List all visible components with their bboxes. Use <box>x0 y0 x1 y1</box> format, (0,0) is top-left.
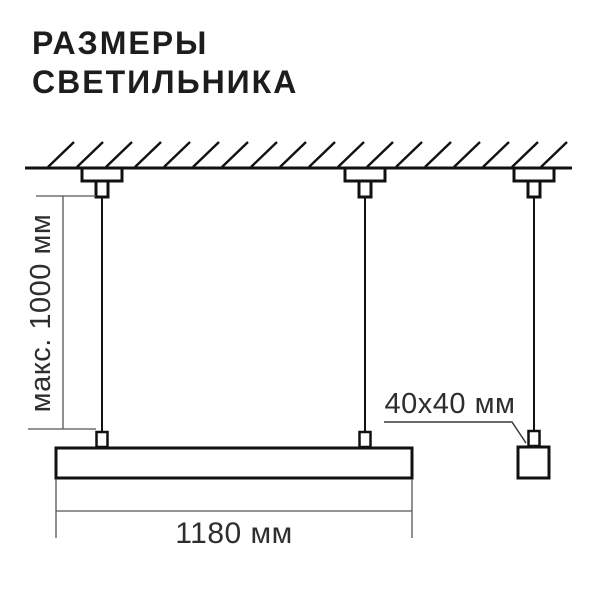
dimension-length: 1180 мм <box>56 479 412 550</box>
profile-cross-section <box>518 447 549 478</box>
profile-size-label: 40x40 мм <box>385 388 516 420</box>
mount-gripper <box>359 181 371 197</box>
dimension-max-height: макс. 1000 мм <box>25 196 96 429</box>
wire-connector-middle <box>360 432 371 447</box>
wire-connector-right <box>529 431 540 446</box>
ceiling-mount-left <box>82 168 122 197</box>
mount-gripper <box>528 181 540 197</box>
leader-line <box>384 422 526 443</box>
dimension-profile: 40x40 мм <box>384 388 526 443</box>
ceiling-mount-middle <box>345 168 385 197</box>
ceiling-hatching <box>48 142 567 167</box>
length-label: 1180 мм <box>175 517 293 550</box>
luminaire-dimensions-figure: РАЗМЕРЫ СВЕТИЛЬНИКА <box>0 0 600 600</box>
ceiling-mount-right <box>514 168 554 197</box>
wire-connector-left <box>97 432 108 447</box>
luminaire-bar <box>56 448 412 478</box>
mount-plate <box>514 168 554 181</box>
mount-gripper <box>96 181 108 197</box>
max-height-label: макс. 1000 мм <box>25 214 57 413</box>
mount-plate <box>345 168 385 181</box>
mount-plate <box>82 168 122 181</box>
technical-drawing: макс. 1000 мм 1180 мм 40x40 мм <box>0 0 600 600</box>
